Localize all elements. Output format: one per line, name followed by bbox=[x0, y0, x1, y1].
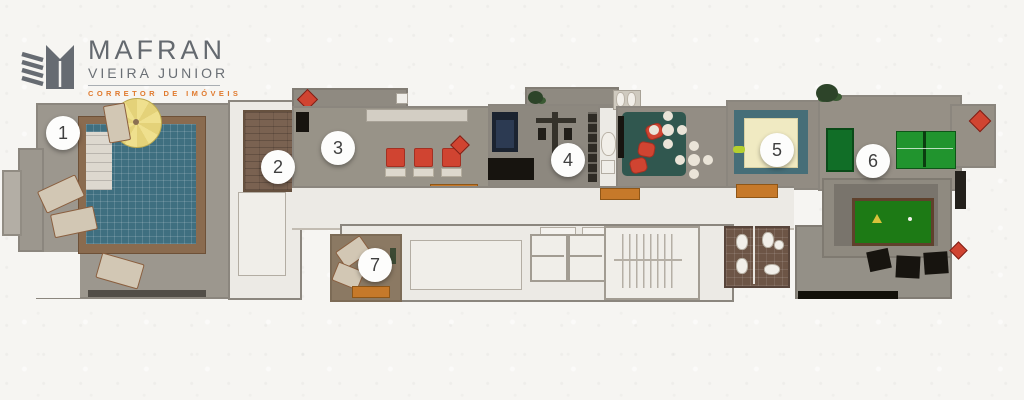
plan-marker-4: 4 bbox=[551, 143, 585, 177]
plan-marker-6: 6 bbox=[856, 144, 890, 178]
logo-mark-icon bbox=[20, 41, 76, 93]
brand-name: MAFRAN bbox=[88, 36, 241, 64]
page: { "logo": { "brand": "MAFRAN", "subtitle… bbox=[0, 0, 1024, 400]
brand-tagline: CORRETOR DE IMÓVEIS bbox=[88, 89, 241, 98]
plan-marker-3: 3 bbox=[321, 131, 355, 165]
plan-marker-2: 2 bbox=[261, 150, 295, 184]
brand-subtitle: VIEIRA JUNIOR bbox=[88, 65, 241, 81]
plan-marker-1: 1 bbox=[46, 116, 80, 150]
logo-divider bbox=[88, 85, 220, 86]
plan-marker-5: 5 bbox=[760, 133, 794, 167]
logo: MAFRAN VIEIRA JUNIOR CORRETOR DE IMÓVEIS bbox=[20, 36, 241, 98]
plan-marker-7: 7 bbox=[358, 248, 392, 282]
